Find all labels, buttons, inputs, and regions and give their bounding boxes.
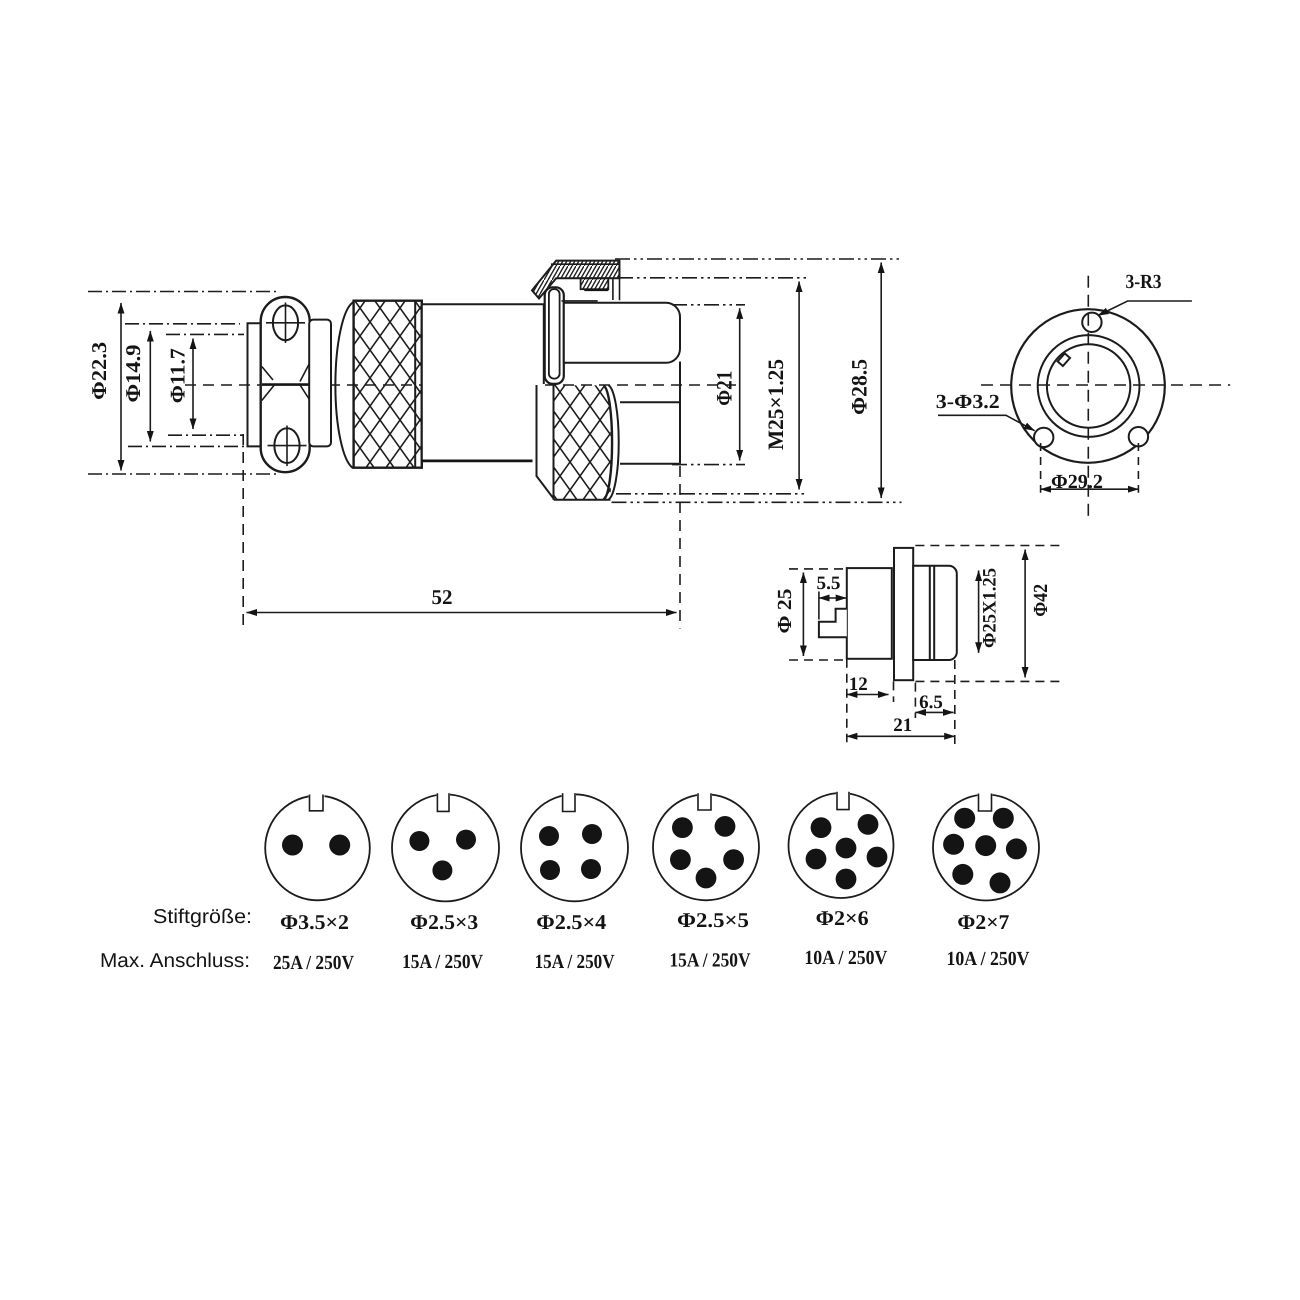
svg-text:Φ42: Φ42 (1030, 584, 1052, 617)
svg-text:Φ21: Φ21 (712, 371, 737, 406)
svg-text:Φ3.5×2: Φ3.5×2 (280, 910, 349, 934)
svg-text:15A / 250V: 15A / 250V (402, 951, 483, 973)
svg-text:Φ2×7: Φ2×7 (957, 910, 1009, 934)
svg-text:25A / 250V: 25A / 250V (273, 952, 354, 974)
svg-text:Φ2.5×3: Φ2.5×3 (410, 910, 478, 934)
svg-text:10A / 250V: 10A / 250V (947, 948, 1030, 970)
svg-text:Φ29.2: Φ29.2 (1051, 471, 1103, 493)
svg-text:52: 52 (432, 585, 453, 609)
svg-text:Φ 25: Φ 25 (774, 589, 796, 634)
svg-text:5.5: 5.5 (817, 573, 841, 594)
svg-text:Stiftgröße:: Stiftgröße: (153, 906, 252, 928)
svg-text:Max. Anschluss:: Max. Anschluss: (100, 950, 250, 972)
svg-text:15A / 250V: 15A / 250V (670, 950, 751, 972)
svg-text:M25×1.25: M25×1.25 (763, 359, 788, 450)
svg-text:6.5: 6.5 (919, 692, 943, 713)
svg-text:Φ22.3: Φ22.3 (87, 342, 111, 400)
svg-text:3-R3: 3-R3 (1126, 271, 1162, 293)
svg-text:Φ2.5×4: Φ2.5×4 (536, 910, 607, 934)
svg-text:21: 21 (893, 715, 912, 736)
svg-text:Φ11.7: Φ11.7 (166, 348, 190, 403)
svg-text:10A / 250V: 10A / 250V (804, 947, 887, 969)
svg-text:Φ28.5: Φ28.5 (847, 359, 872, 415)
svg-text:Φ25X1.25: Φ25X1.25 (979, 568, 1000, 648)
svg-text:Φ14.9: Φ14.9 (121, 345, 145, 403)
svg-text:12: 12 (849, 674, 868, 695)
svg-text:3-Φ3.2: 3-Φ3.2 (936, 391, 1000, 413)
svg-text:Φ2×6: Φ2×6 (816, 906, 869, 930)
svg-text:Φ2.5×5: Φ2.5×5 (677, 908, 749, 932)
svg-text:15A / 250V: 15A / 250V (535, 951, 615, 973)
